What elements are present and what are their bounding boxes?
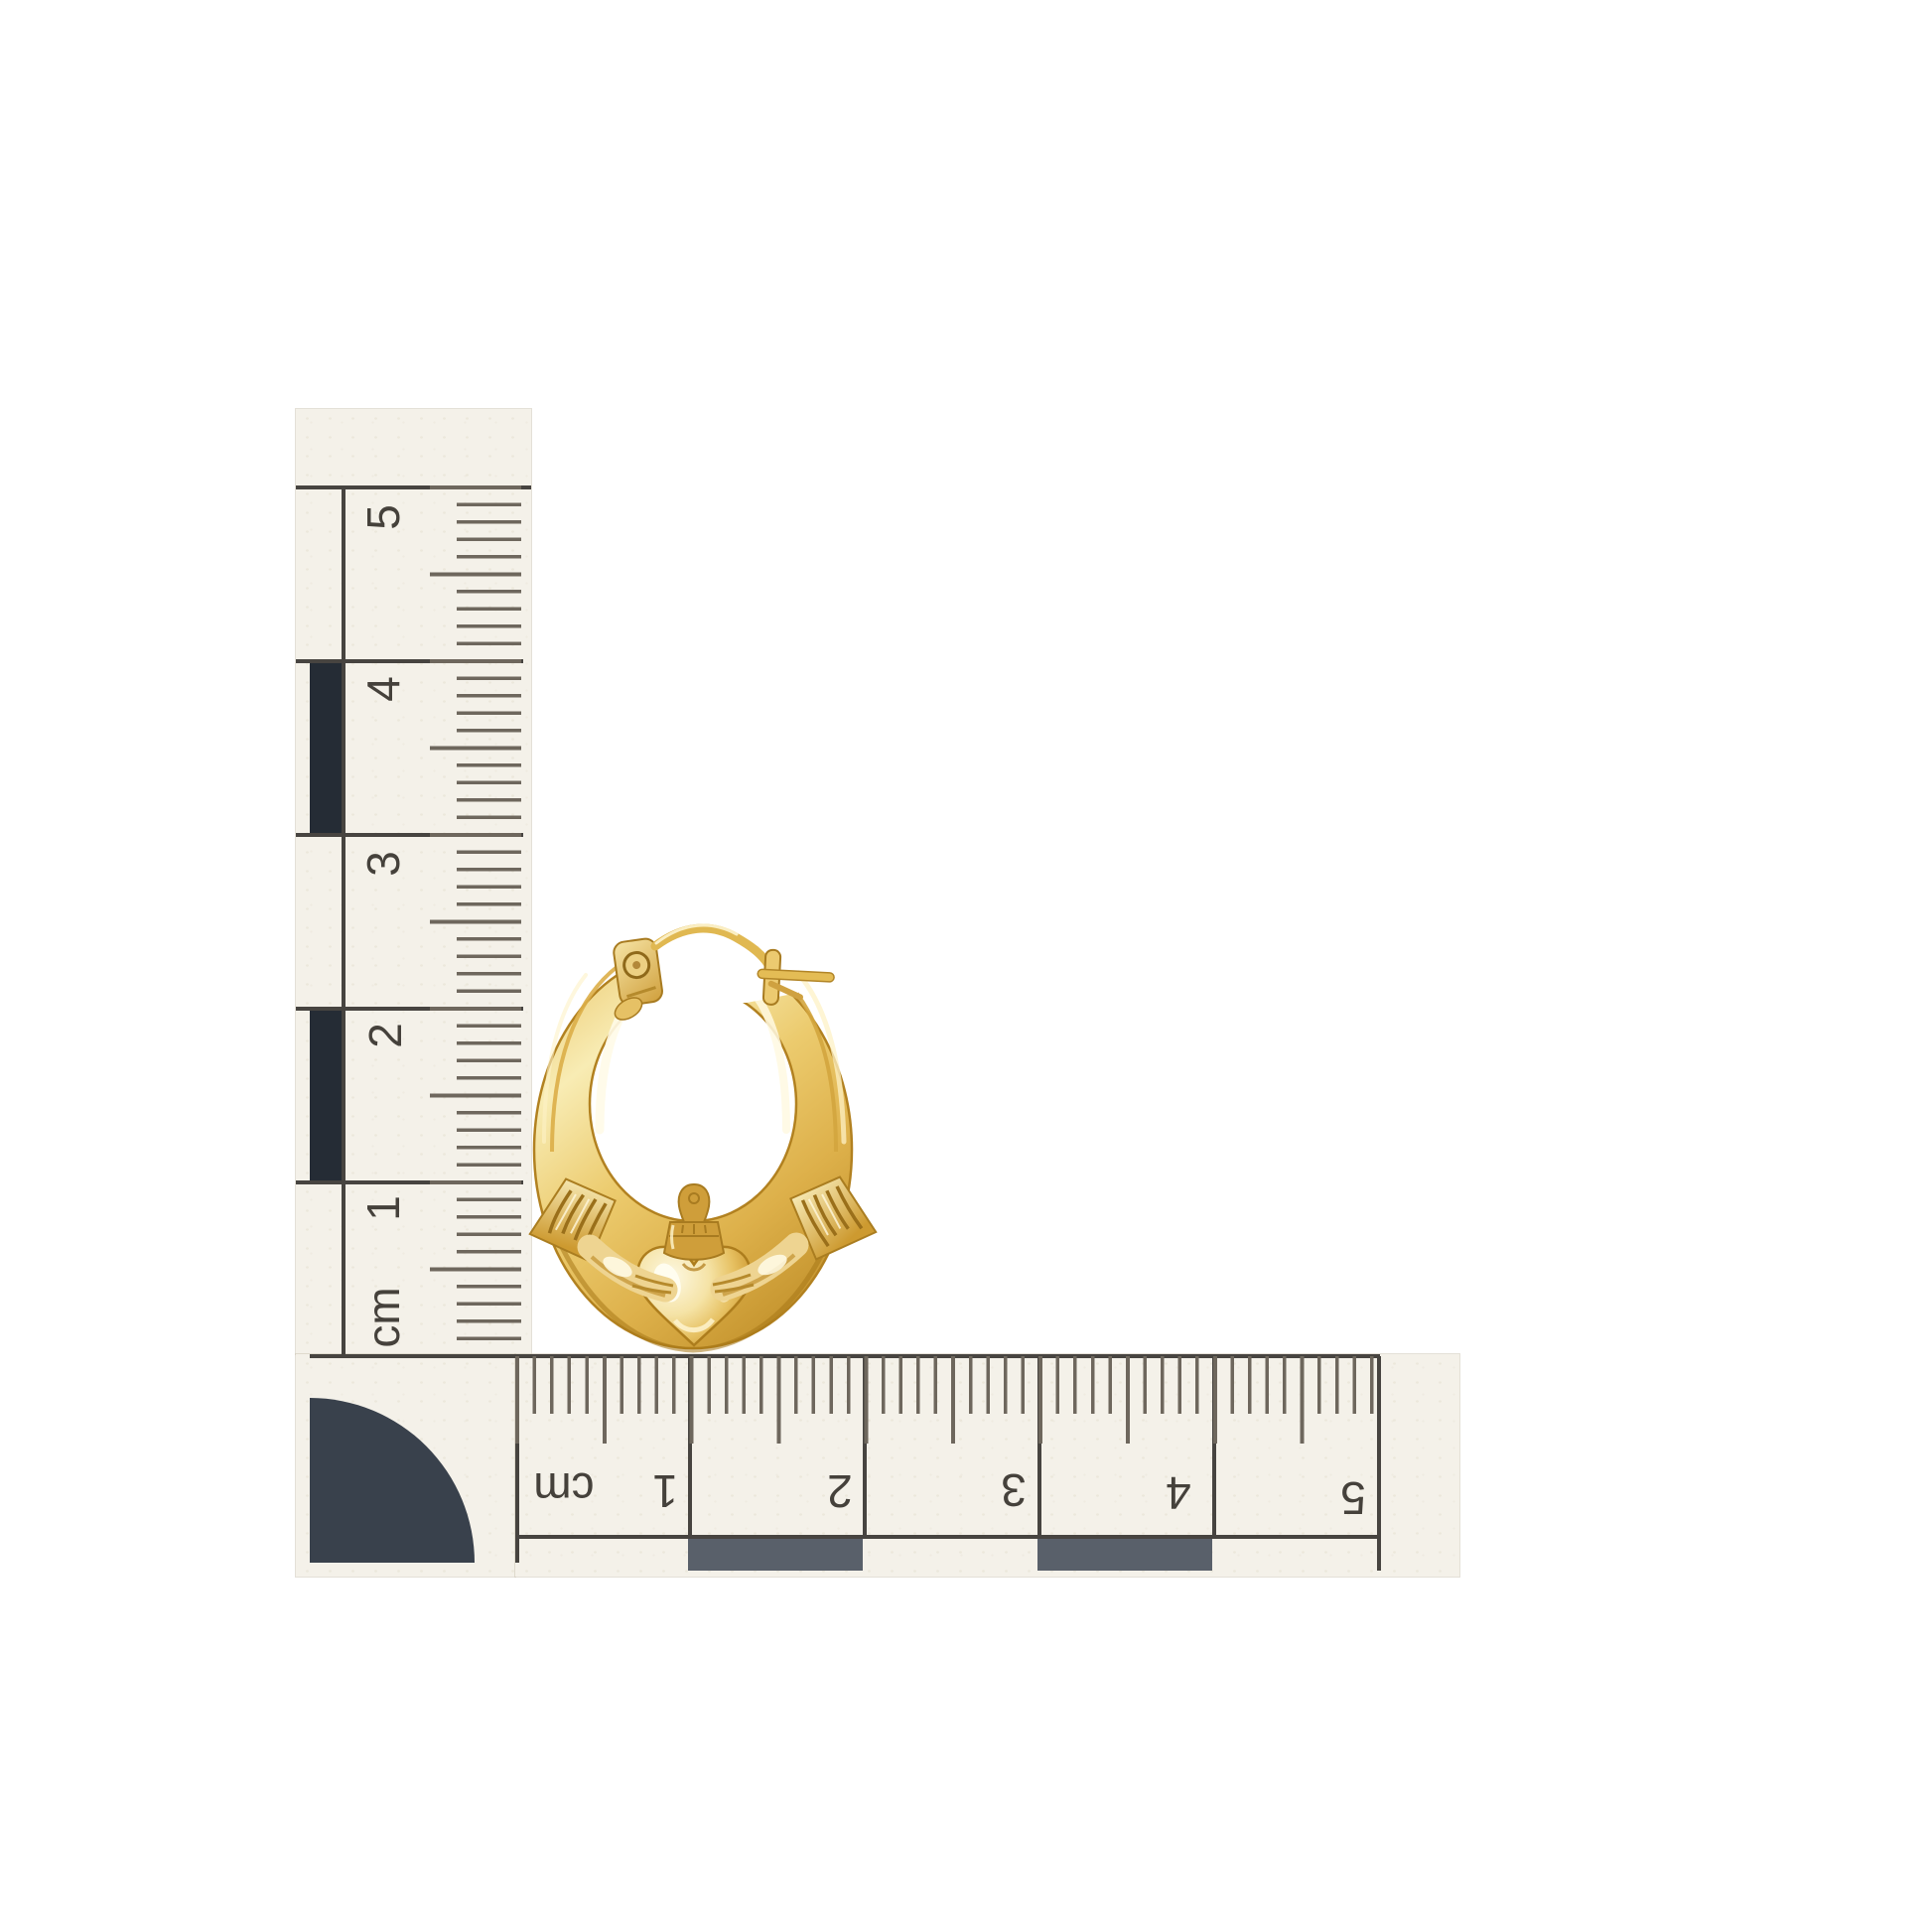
photo-scene: 5 4 3 2 1 cm cm 1 2 3 4 5	[0, 0, 1932, 1932]
vertical-dark-band-4-3	[310, 659, 343, 833]
earring-photo	[496, 894, 894, 1380]
vertical-ruler-label-cm: cm	[360, 1287, 406, 1347]
horizontal-ruler-label-1: 1	[652, 1468, 678, 1514]
horizontal-ruler-bottom-line	[515, 1535, 1381, 1539]
horizontal-ruler-label-2: 2	[827, 1468, 853, 1514]
horizontal-ruler-label-4: 4	[1166, 1470, 1191, 1516]
vertical-ruler-label-2: 2	[362, 1023, 408, 1048]
crown	[664, 1184, 724, 1260]
horizontal-ruler-label-3: 3	[1001, 1467, 1027, 1513]
vertical-ruler-label-1: 1	[360, 1195, 406, 1221]
vertical-dark-band-2-1	[310, 1007, 343, 1180]
horizontal-ruler-label-5: 5	[1340, 1475, 1366, 1521]
vertical-ruler-label-3: 3	[360, 851, 406, 877]
vertical-ruler-inner-line	[342, 485, 345, 1354]
vertical-ruler-label-4: 4	[360, 676, 406, 702]
horizontal-dark-band-3-4	[1037, 1539, 1212, 1571]
horizontal-ruler-label-cm: cm	[533, 1466, 594, 1512]
horizontal-dark-band-1-2	[688, 1539, 863, 1571]
vertical-ruler-label-5: 5	[360, 504, 406, 530]
